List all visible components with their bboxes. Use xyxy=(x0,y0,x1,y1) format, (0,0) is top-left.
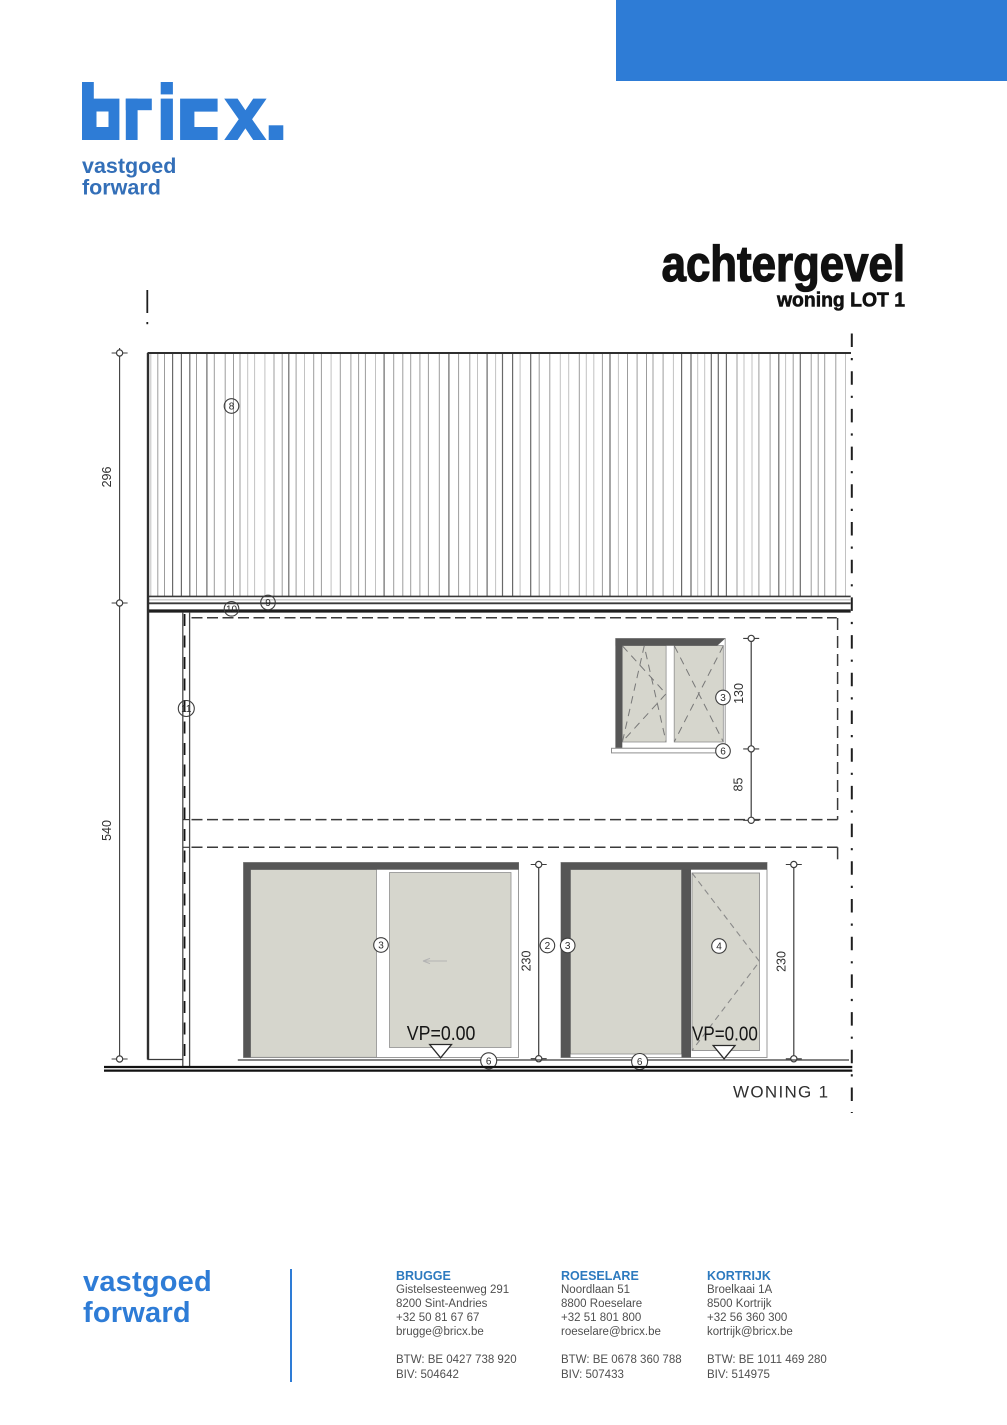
svg-text:130: 130 xyxy=(732,683,746,704)
svg-text:540: 540 xyxy=(100,820,114,841)
svg-text:6: 6 xyxy=(720,747,726,758)
svg-text:230: 230 xyxy=(775,951,789,972)
svg-text:10: 10 xyxy=(226,604,238,615)
svg-text:11: 11 xyxy=(181,704,192,715)
svg-text:8: 8 xyxy=(229,402,235,413)
svg-text:VP=0.00: VP=0.00 xyxy=(692,1023,758,1046)
svg-text:230: 230 xyxy=(520,951,534,972)
svg-text:2: 2 xyxy=(545,941,551,952)
svg-text:9: 9 xyxy=(265,598,271,609)
svg-text:3: 3 xyxy=(378,941,384,952)
svg-text:296: 296 xyxy=(100,467,114,488)
svg-text:3: 3 xyxy=(565,941,571,952)
svg-text:VP=0.00: VP=0.00 xyxy=(407,1022,476,1045)
svg-text:3: 3 xyxy=(720,693,726,704)
svg-text:WONING 1: WONING 1 xyxy=(733,1083,829,1102)
svg-text:4: 4 xyxy=(716,942,722,953)
svg-text:85: 85 xyxy=(731,778,745,792)
svg-text:6: 6 xyxy=(486,1056,492,1067)
